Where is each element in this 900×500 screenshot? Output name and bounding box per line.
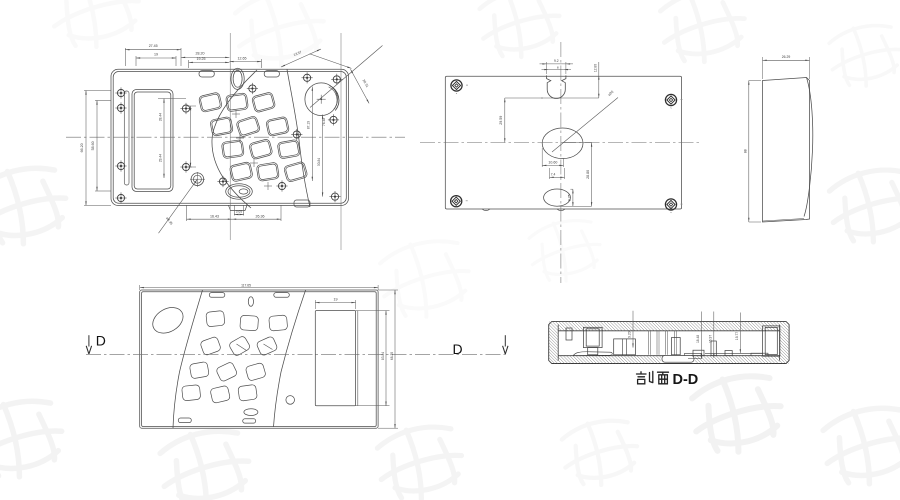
- svg-text:26.36: 26.36: [256, 214, 265, 218]
- svg-text:88: 88: [743, 149, 747, 153]
- svg-text:58.60: 58.60: [91, 141, 95, 150]
- svg-text:27.45: 27.45: [149, 44, 158, 48]
- svg-text:9.20: 9.20: [628, 331, 632, 338]
- svg-text:29.44: 29.44: [159, 154, 163, 162]
- svg-text:D-D: D-D: [673, 372, 699, 388]
- svg-text:10.60: 10.60: [548, 160, 557, 164]
- svg-text:3.65: 3.65: [236, 209, 243, 213]
- svg-text:18.48: 18.48: [696, 335, 700, 343]
- svg-text:7.4: 7.4: [551, 172, 556, 176]
- svg-text:30.84: 30.84: [317, 158, 321, 166]
- svg-text:83.84: 83.84: [381, 352, 385, 360]
- svg-text:28.80: 28.80: [586, 170, 590, 179]
- svg-text:26.29: 26.29: [782, 55, 791, 59]
- svg-text:117.65: 117.65: [241, 283, 251, 287]
- svg-text:28.44: 28.44: [159, 113, 163, 121]
- svg-text:9.2: 9.2: [554, 59, 559, 63]
- svg-text:19.25: 19.25: [197, 57, 206, 61]
- svg-text:19.77: 19.77: [735, 332, 739, 340]
- svg-text:66.20: 66.20: [80, 143, 84, 152]
- svg-text:76.48: 76.48: [322, 118, 326, 126]
- svg-text:16.43: 16.43: [210, 214, 219, 218]
- svg-text:87.19: 87.19: [307, 121, 311, 129]
- svg-text:19: 19: [154, 53, 158, 57]
- svg-text:28.20: 28.20: [196, 51, 205, 55]
- svg-text:9.25: 9.25: [568, 194, 572, 201]
- svg-text:D: D: [96, 333, 106, 349]
- svg-text:16.97: 16.97: [709, 335, 713, 343]
- svg-text:68.20: 68.20: [390, 352, 394, 360]
- svg-text:29.59: 29.59: [499, 116, 503, 125]
- svg-text:12.65: 12.65: [238, 56, 247, 60]
- svg-text:D: D: [453, 341, 463, 357]
- svg-text:8: 8: [557, 65, 559, 69]
- svg-text:12.80: 12.80: [594, 64, 598, 72]
- svg-text:19: 19: [334, 298, 338, 302]
